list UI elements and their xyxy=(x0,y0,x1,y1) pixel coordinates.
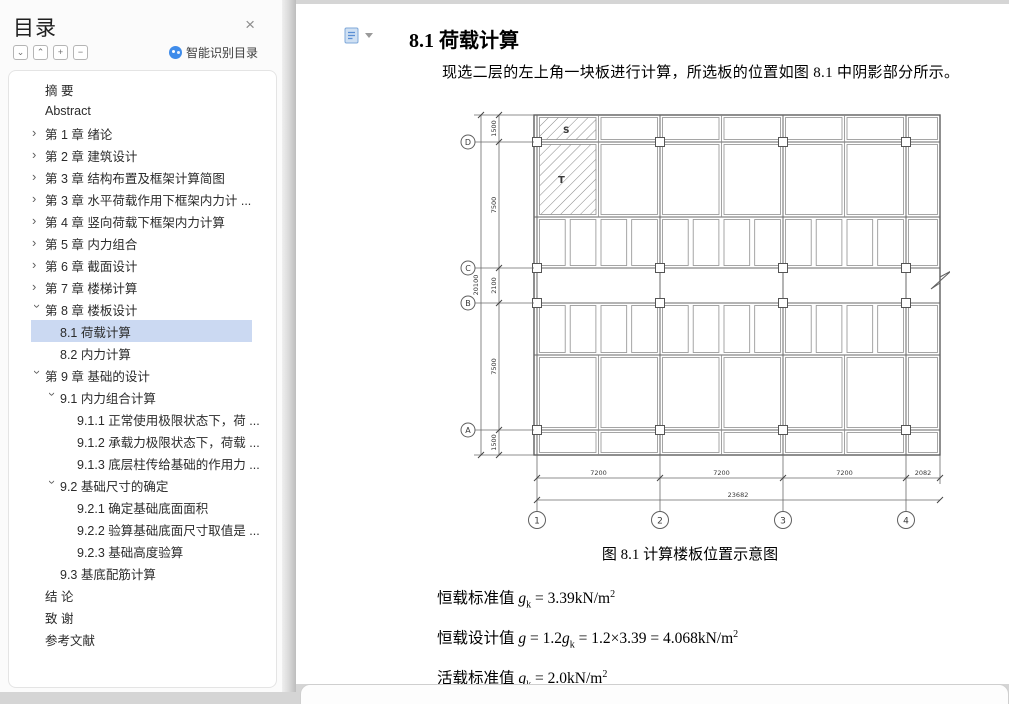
chevron-down-icon xyxy=(365,33,373,38)
dim-bottom-7200-1: 7200 xyxy=(590,469,607,477)
formula-line: 恒载标准值 gk = 3.39kN/m2 xyxy=(437,584,738,624)
dim-bottom-2082: 2082 xyxy=(915,469,932,477)
dim-left-2100: 2100 xyxy=(490,277,498,294)
toc-item-label: 参考文献 xyxy=(45,630,95,649)
chevron-slot: › xyxy=(45,390,60,404)
dim-left-1500-bot: 1500 xyxy=(490,434,498,451)
dim-left-1500-top: 1500 xyxy=(490,120,498,137)
chevron-up-button[interactable]: ⌃ xyxy=(33,45,48,60)
chevron-down-icon[interactable]: › xyxy=(45,480,59,495)
toc-item-label: Abstract xyxy=(45,104,91,118)
toc-item[interactable]: 9.1.2 承载力极限状态下，荷载 ... xyxy=(9,430,276,452)
grid-bubble-1: 1 xyxy=(534,517,540,527)
toc-item[interactable]: › 第 5 章 内力组合 xyxy=(9,232,276,254)
toc-item[interactable]: 致 谢 xyxy=(9,606,276,628)
toc-item[interactable]: 结 论 xyxy=(9,584,276,606)
grid-bubble-b: B xyxy=(465,299,471,308)
toc-item[interactable]: › 9.1 内力组合计算 xyxy=(9,386,276,408)
chevron-slot xyxy=(30,632,45,646)
toc-title: 目录 xyxy=(13,12,57,42)
toc-item-label: 9.1.3 底层柱传给基础的作用力 ... xyxy=(77,454,260,473)
toc-item-label: 9.2.3 基础高度验算 xyxy=(77,542,183,561)
pdf-page: 8.1 荷载计算 现选二层的左上角一块板进行计算，所选板的位置如图 8.1 中阴… xyxy=(296,4,1009,684)
chevron-slot xyxy=(45,346,60,360)
toc-item[interactable]: 8.2 内力计算 xyxy=(9,342,276,364)
chevron-slot xyxy=(45,324,60,338)
grid-bubble-a: A xyxy=(465,426,471,435)
grid-bubble-4: 4 xyxy=(903,517,909,527)
chevron-slot: › xyxy=(30,192,45,206)
toc-item[interactable]: › 9.2 基础尺寸的确定 xyxy=(9,474,276,496)
toc-sidebar: 目录 × ⌄ ⌃ + − 智能识别目录 摘 要 Abstract › 第 1 章… xyxy=(0,0,282,692)
toc-item[interactable]: › 第 1 章 绪论 xyxy=(9,122,276,144)
toc-item[interactable]: › 第 3 章 水平荷载作用下框架内力计 ... xyxy=(9,188,276,210)
slab-t-hatch xyxy=(540,145,597,215)
toc-item[interactable]: 9.1.3 底层柱传给基础的作用力 ... xyxy=(9,452,276,474)
toc-item[interactable]: › 第 4 章 竖向荷载下框架内力计算 xyxy=(9,210,276,232)
chevron-slot: › xyxy=(30,280,45,294)
toc-item[interactable]: › 第 2 章 建筑设计 xyxy=(9,144,276,166)
toc-item-label: 致 谢 xyxy=(45,608,73,627)
formula-line: 恒载设计值 g = 1.2gk = 1.2×3.39 = 4.068kN/m2 xyxy=(437,624,738,664)
toc-item-label: 第 5 章 内力组合 xyxy=(45,234,137,253)
close-icon[interactable]: × xyxy=(245,16,255,33)
grid-bubble-c: C xyxy=(465,264,471,273)
toc-item-label: 9.1 内力组合计算 xyxy=(60,388,156,407)
toc-item[interactable]: › 第 3 章 结构布置及框架计算简图 xyxy=(9,166,276,188)
grid-bubble-d: D xyxy=(465,138,471,147)
floor-plan-figure: S T xyxy=(430,107,950,537)
toc-item-label: 8.1 荷载计算 xyxy=(60,322,131,341)
toc-item[interactable]: 摘 要 xyxy=(9,78,276,100)
toc-item[interactable]: 8.1 荷载计算 xyxy=(9,320,276,342)
toc-toolbar: ⌄ ⌃ + − xyxy=(13,45,88,61)
toc-item-label: 第 8 章 楼板设计 xyxy=(45,300,137,319)
toc-item-label: 结 论 xyxy=(45,586,73,605)
chevron-down-icon[interactable]: › xyxy=(30,370,44,385)
chevron-slot: › xyxy=(30,258,45,272)
chevron-slot: › xyxy=(30,126,45,140)
chevron-slot: › xyxy=(30,368,45,382)
paragraph-tool-button[interactable] xyxy=(344,27,373,44)
toc-item[interactable]: 9.2.3 基础高度验算 xyxy=(9,540,276,562)
grid-bubble-3: 3 xyxy=(780,517,786,527)
toc-item-label: 第 7 章 楼梯计算 xyxy=(45,278,137,297)
chevron-down-icon[interactable]: › xyxy=(45,392,59,407)
section-heading: 8.1 荷载计算 xyxy=(409,24,519,53)
toc-item-label: 第 9 章 基础的设计 xyxy=(45,366,150,385)
toc-item-label: 9.1.2 承载力极限状态下，荷载 ... xyxy=(77,432,260,451)
toc-item[interactable]: 9.2.2 验算基础底面尺寸取值是 ... xyxy=(9,518,276,540)
slab-t-label: T xyxy=(558,175,565,186)
toc-item-label: 第 2 章 建筑设计 xyxy=(45,146,137,165)
toc-item-label: 9.2 基础尺寸的确定 xyxy=(60,476,168,495)
dim-left-7500-b: 7500 xyxy=(490,358,498,375)
plus-button[interactable]: + xyxy=(53,45,68,60)
chevron-slot xyxy=(30,104,45,118)
dim-bottom-7200-2: 7200 xyxy=(713,469,730,477)
bottom-floating-bar[interactable] xyxy=(300,684,1009,704)
toc-item-label: 摘 要 xyxy=(45,80,73,99)
toc-item-label: 9.2.1 确定基础底面面积 xyxy=(77,498,208,517)
chevron-down-button[interactable]: ⌄ xyxy=(13,45,28,60)
toc-item[interactable]: 参考文献 xyxy=(9,628,276,650)
toc-item-label: 9.1.1 正常使用极限状态下，荷 ... xyxy=(77,410,260,429)
toc-item-label: 9.3 基底配筋计算 xyxy=(60,564,156,583)
grid-bubble-2: 2 xyxy=(657,517,663,527)
chevron-slot xyxy=(30,588,45,602)
toc-item[interactable]: › 第 6 章 截面设计 xyxy=(9,254,276,276)
slab-s-label: S xyxy=(563,126,569,136)
toc-item-label: 第 6 章 截面设计 xyxy=(45,256,137,275)
toc-item[interactable]: 9.1.1 正常使用极限状态下，荷 ... xyxy=(9,408,276,430)
chevron-slot: › xyxy=(30,302,45,316)
minus-button[interactable]: − xyxy=(73,45,88,60)
toc-item-label: 9.2.2 验算基础底面尺寸取值是 ... xyxy=(77,520,260,539)
dim-bottom-total: 23682 xyxy=(728,491,749,499)
chevron-slot: › xyxy=(30,170,45,184)
toc-item-label: 8.2 内力计算 xyxy=(60,344,131,363)
toc-item[interactable]: › 第 9 章 基础的设计 xyxy=(9,364,276,386)
toc-item-label: 第 4 章 竖向荷载下框架内力计算 xyxy=(45,212,225,231)
chevron-slot xyxy=(45,566,60,580)
smart-toc-label: 智能识别目录 xyxy=(186,44,258,61)
toc-item[interactable]: › 第 8 章 楼板设计 xyxy=(9,298,276,320)
dim-left-total: 20100 xyxy=(472,275,480,296)
toc-item-label: 第 3 章 结构布置及框架计算简图 xyxy=(45,168,225,187)
ai-icon xyxy=(169,46,182,59)
toc-item[interactable]: 9.3 基底配筋计算 xyxy=(9,562,276,584)
body-paragraph: 现选二层的左上角一块板进行计算，所选板的位置如图 8.1 中阴影部分所示。 xyxy=(442,61,959,82)
dim-bottom-7200-3: 7200 xyxy=(836,469,853,477)
smart-toc-button[interactable]: 智能识别目录 xyxy=(169,44,258,61)
dim-left-7500-a: 7500 xyxy=(490,197,498,214)
toc-item[interactable]: 9.2.1 确定基础底面面积 xyxy=(9,496,276,518)
chevron-slot: › xyxy=(30,214,45,228)
toc-item[interactable]: Abstract xyxy=(9,100,276,122)
chevron-slot: › xyxy=(30,236,45,250)
chevron-down-icon[interactable]: › xyxy=(30,304,44,319)
toc-item-label: 第 1 章 绪论 xyxy=(45,124,112,143)
toc-item-label: 第 3 章 水平荷载作用下框架内力计 ... xyxy=(45,190,251,209)
chevron-slot: › xyxy=(30,148,45,162)
toc-tree: 摘 要 Abstract › 第 1 章 绪论 › 第 2 章 建筑设计 › 第… xyxy=(8,70,277,688)
figure-caption: 图 8.1 计算楼板位置示意图 xyxy=(430,543,950,564)
chevron-slot xyxy=(30,82,45,96)
toc-item[interactable]: › 第 7 章 楼梯计算 xyxy=(9,276,276,298)
panel-page-gutter xyxy=(282,0,296,692)
chevron-slot xyxy=(30,610,45,624)
chevron-slot: › xyxy=(45,478,60,492)
document-icon xyxy=(344,27,360,44)
